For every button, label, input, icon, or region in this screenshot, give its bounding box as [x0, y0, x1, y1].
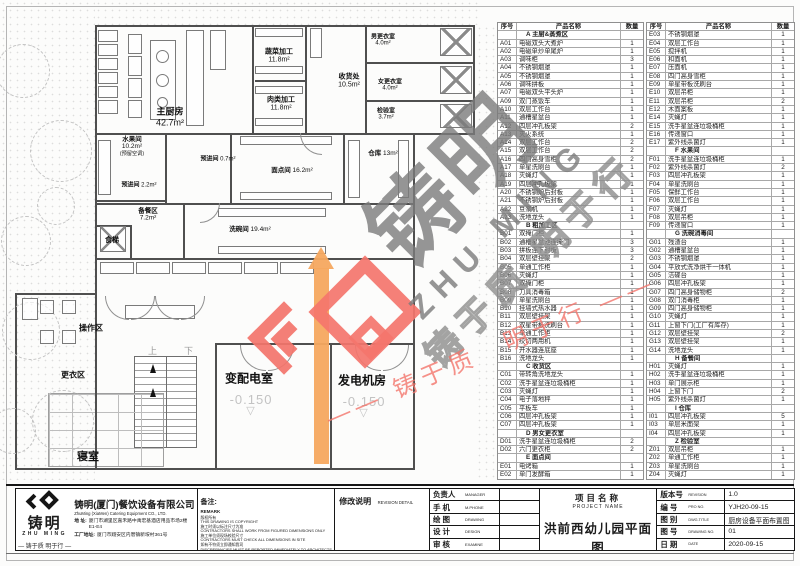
room-name: 水果间 [120, 133, 144, 143]
equipment-row: E14灭蝇灯1 [647, 114, 794, 122]
equip-name: 通槽星盆台 [517, 114, 621, 121]
equipment-row: B03拼板连下封板3 [498, 247, 643, 255]
equip-name: 压面机 [666, 64, 772, 71]
equip-name: 双掩门柜 [517, 230, 621, 237]
equipment-row: G09四门高身储物柜1 [647, 305, 794, 313]
equip-code: G08 [647, 297, 666, 304]
equip-name: 调味拼板 [517, 81, 621, 88]
signer-value [499, 489, 539, 500]
drawing-info-row: 图 号DRAWING NO.01 [657, 526, 794, 538]
equipment-row: G14洗地龙头1 [647, 347, 794, 355]
equip-qty: 1 [772, 64, 794, 71]
equip-name: 灭蝇灯 [666, 313, 772, 320]
equip-code: A12 [498, 123, 517, 130]
equip-qty: 1 [621, 388, 643, 395]
section-row: G 洗碗消毒间 [647, 230, 794, 238]
stair-direction-arrow [150, 388, 156, 397]
equip-qty: 1 [772, 114, 794, 121]
equip-qty: 1 [621, 305, 643, 312]
equip-qty: 1 [772, 89, 794, 96]
equipment-block [310, 28, 322, 58]
signer-label-zh: 负责人 [430, 489, 465, 500]
equipment-row: E09单星带板洗刷台1 [647, 81, 794, 89]
room-name: 肉类加工 [267, 95, 295, 105]
room-label: 男更衣室4.0m² [371, 32, 395, 47]
project-cell: 项目名称 PROJECT NAME 洪前西幼儿园平面图 [540, 489, 658, 550]
equip-qty: 1 [621, 172, 643, 179]
remark-line: DISCREPANCIES MUST BE REPORTED IMMEDIATE… [201, 548, 332, 550]
equip-code: B12 [498, 322, 517, 329]
equip-qty: 1 [621, 421, 643, 428]
equip-qty: 5 [772, 413, 794, 420]
section-label: A 主厨&蒸煮区 [517, 31, 621, 38]
equip-qty: 1 [621, 164, 643, 171]
equipment-row: A19四层冲孔板架1 [498, 181, 643, 189]
equipment-row: A15双层工作台2 [498, 147, 643, 155]
equip-code: E16 [647, 131, 666, 138]
equip-qty: 2 [621, 123, 643, 130]
equip-code: I01 [647, 413, 666, 420]
info-label-zh: 图 号 [657, 526, 688, 537]
equipment-block [208, 262, 242, 274]
room-name: 蔬菜加工 [265, 47, 293, 57]
section-qty [621, 430, 643, 437]
equip-name: 双层吊柜 [666, 98, 772, 105]
equipment-row: B09单星洗刷台1 [498, 297, 643, 305]
equip-qty: 1 [621, 405, 643, 412]
section-row: D 男女更衣室 [498, 430, 643, 438]
section-row: Z 检验室 [647, 438, 794, 446]
equip-qty: 1 [621, 230, 643, 237]
equip-name: 不锈钢炉后封板 [517, 197, 621, 204]
equip-qty: 2 [621, 156, 643, 163]
section-qty [772, 230, 794, 237]
equipment-block [440, 66, 472, 94]
equipment-row: F08双层吊柜1 [647, 214, 794, 222]
equipment-row: C01带转角洗地龙头1 [498, 371, 643, 379]
tree-icon [37, 187, 75, 225]
equip-code: I04 [647, 430, 666, 437]
equip-qty: 1 [772, 214, 794, 221]
floor-plan: 上 下 主厨房42.7m²蔬菜加工11.8m²肉类加工11.8m²收货处10.5… [0, 0, 497, 487]
equip-name: 灭蝇灯 [666, 363, 772, 370]
equip-code: B13 [498, 330, 517, 337]
header-name: 产品名称 [517, 23, 621, 30]
equip-code: B14 [498, 338, 517, 345]
room-label: 变配电室 [225, 370, 273, 387]
equip-name: 双层壁挂架 [666, 330, 772, 337]
drawing-info-row: 日 期DATE2020-09-15 [657, 539, 794, 550]
equip-code: G04 [647, 264, 666, 271]
equip-qty: 1 [621, 206, 643, 213]
equipment-block [210, 30, 226, 70]
equip-qty: 1 [772, 454, 794, 461]
equip-qty: 1 [772, 421, 794, 428]
equip-qty: 1 [772, 181, 794, 188]
equip-code: A16 [498, 156, 517, 163]
equip-name: 灭蝇灯 [517, 172, 621, 179]
room-name: 女更衣室 [378, 77, 402, 86]
equipment-row: I01四层冲孔板架5 [647, 413, 794, 421]
equip-name: 灭蝇灯 [517, 388, 621, 395]
equip-code: A22 [498, 206, 517, 213]
equipment-row: B10挂墙式热水器1 [498, 305, 643, 313]
equip-name: 单星洗刷台 [666, 463, 772, 470]
equipment-row: A04不锈钢烟罩1 [498, 64, 643, 72]
company-cell: 铸明 ZHU MING — 铸于质 明于行 — 铸明(厦门)餐饮设备有限公司 Z… [16, 489, 198, 550]
equip-name: 洁碟台 [666, 272, 772, 279]
equipment-row: B06灭蝇灯1 [498, 272, 643, 280]
equip-code: A19 [498, 181, 517, 188]
wall-segment [413, 133, 415, 470]
equip-name: 洗手星盆连垃圾桶柜 [666, 156, 772, 163]
equipment-block [62, 330, 76, 344]
equip-code: A14 [498, 139, 517, 146]
room-area: 13m² [381, 150, 398, 157]
section-row: I 仓库 [647, 405, 794, 413]
tree-icon [30, 120, 92, 182]
equipment-row: E17紫外线杀菌灯1 [647, 139, 794, 147]
room-name: 食梯 [105, 235, 119, 245]
equipment-row: H01灭蝇灯1 [647, 363, 794, 371]
equip-qty: 1 [621, 338, 643, 345]
room-area: 4.0m² [378, 86, 402, 92]
section-label: E 面点间 [517, 454, 621, 461]
signer-row: 负责人MANAGER [430, 489, 539, 501]
equipment-row: G11上窗下门(工厂有库存)1 [647, 322, 794, 330]
equip-qty: 1 [621, 189, 643, 196]
equip-qty: 1 [772, 255, 794, 262]
equip-code: D02 [498, 446, 517, 453]
equipment-row: G05洁碟台1 [647, 272, 794, 280]
equipment-row: F09传递窗口1 [647, 222, 794, 230]
equip-name: 双门消毒柜 [666, 297, 772, 304]
equipment-row: I04四层冲孔板架1 [647, 430, 794, 438]
equipment-block [98, 100, 118, 114]
equip-code: I03 [647, 421, 666, 428]
room-area: 11.8m² [265, 57, 293, 64]
equipment-row: F06双层工作台1 [647, 197, 794, 205]
equipment-table-left: 序号产品名称数量A 主厨&蒸煮区A01电磁双头大煮炉1A02电磁单炒单尾炉1A0… [497, 22, 644, 480]
equipment-row: A23洗地龙头1 [498, 214, 643, 222]
equip-name: 残渣台 [666, 239, 772, 246]
signer-label-zh: 手 机 [430, 502, 465, 513]
equip-code: A07 [498, 89, 517, 96]
room-label: 操作区 [79, 323, 103, 334]
equip-name: 上窗下门(工厂有库存) [666, 322, 772, 329]
equip-name: 双层工作台 [666, 197, 772, 204]
section-no [647, 147, 666, 154]
equip-code: G02 [647, 247, 666, 254]
equip-code: E05 [647, 48, 666, 55]
stair-direction-arrow [150, 364, 156, 373]
section-no [647, 438, 666, 445]
equip-name: 双星带板洗刷台 [517, 322, 621, 329]
equip-qty: 1 [772, 446, 794, 453]
equipment-row: E04双层工作台1 [647, 40, 794, 48]
equip-name: 六门更衣柜 [517, 446, 621, 453]
wall-segment [413, 133, 475, 135]
factory-label: 工厂地址: [74, 533, 95, 539]
equipment-row: Z03单星洗刷台1 [647, 463, 794, 471]
landscape-texture [95, 0, 480, 25]
section-no [647, 355, 666, 362]
wall-segment [365, 25, 367, 135]
signer-label-zh: 设 计 [430, 526, 465, 537]
equipment-row: E12木面案板1 [647, 106, 794, 114]
remark-title-en: REMARK [201, 509, 332, 515]
revision-title-zh: 修改说明 [339, 497, 371, 506]
project-header: 项目名称 PROJECT NAME [540, 492, 657, 510]
equip-qty: 1 [621, 297, 643, 304]
equip-qty: 1 [772, 363, 794, 370]
signer-row: 审 核EXAMINE [430, 539, 539, 550]
equip-qty: 3 [621, 247, 643, 254]
equipment-block [40, 300, 54, 314]
equip-code: H03 [647, 380, 666, 387]
equip-code: B06 [498, 272, 517, 279]
equip-qty: 2 [772, 289, 794, 296]
signers-cell: 负责人MANAGER手 机M.PHONE绘 图DRAWING设 计DESIGN审… [430, 489, 540, 550]
company-name-en: ZhuMing (XiaMen) Catering Equipment CO.,… [74, 511, 194, 517]
equip-name: 四门高身雪柜 [517, 156, 621, 163]
equipment-block [136, 262, 170, 274]
drawing-info-row: 版本号REVISION1.0 [657, 489, 794, 501]
factory-value: 厦门市翔安区内厝镇新垵村361号 [97, 533, 167, 539]
equip-qty: 1 [772, 222, 794, 229]
section-qty [621, 363, 643, 370]
equip-code: H05 [647, 396, 666, 403]
equip-qty: 1 [621, 347, 643, 354]
equipment-block [255, 118, 303, 126]
equipment-row: E03不锈钢烟罩1 [647, 31, 794, 39]
room-label: 寝室 [77, 448, 99, 464]
equip-qty: 2 [772, 330, 794, 337]
equip-code: A05 [498, 73, 517, 80]
section-row: C 收货区 [498, 363, 643, 371]
equip-code: E07 [647, 64, 666, 71]
room-area: 10.5m² [338, 82, 360, 89]
equip-name: 洗手星盆连垃圾桶柜 [666, 371, 772, 378]
titleblock-bottomline [6, 553, 794, 554]
equipment-row: A03调味柜3 [498, 56, 643, 64]
equip-qty: 2 [772, 388, 794, 395]
signer-value [499, 501, 539, 512]
table-header-row: 序号产品名称数量 [498, 23, 643, 31]
room-label: 面点间 16.2m² [271, 164, 313, 174]
equip-qty: 1 [621, 463, 643, 470]
equip-code: B05 [498, 264, 517, 271]
equip-name: 四层冲孔板架 [517, 421, 621, 428]
equip-qty: 1 [772, 471, 794, 479]
section-row: E 面点间 [498, 454, 643, 462]
equip-qty: 1 [772, 239, 794, 246]
equip-code: E03 [647, 31, 666, 38]
equipment-block [218, 208, 326, 217]
equip-name: 双层吊柜 [666, 446, 772, 453]
equipment-block [100, 262, 134, 274]
section-label: G 洗碗消毒间 [666, 230, 772, 237]
equip-name: 平板车 [517, 405, 621, 412]
equip-code: F01 [647, 156, 666, 163]
section-qty [772, 405, 794, 412]
equipment-row: G01残渣台1 [647, 239, 794, 247]
revision-title-en: REVISION DETAIL [378, 500, 414, 505]
room-area: 42.7m² [156, 118, 184, 128]
header-name: 产品名称 [666, 23, 772, 30]
section-no [498, 430, 517, 437]
equipment-row: C07四层冲孔板架1 [498, 421, 643, 429]
equip-code: D01 [498, 438, 517, 445]
equip-name: 四层冲孔板架 [666, 430, 772, 437]
signer-row: 手 机M.PHONE [430, 501, 539, 513]
equip-name: 紫外线杀菌灯 [666, 396, 772, 403]
room-name: 面点间 [271, 167, 291, 174]
equipment-row: A20不锈钢炉后封板1 [498, 189, 643, 197]
door-swing-arc [355, 345, 381, 371]
equip-qty: 1 [772, 338, 794, 345]
equipment-row: A09双门蒸饭车1 [498, 98, 643, 106]
equip-code: G01 [647, 239, 666, 246]
stair-down-label: 下 [184, 344, 193, 357]
equipment-row: E16传递窗口1 [647, 131, 794, 139]
equip-qty: 1 [621, 131, 643, 138]
equipment-table-right: 序号产品名称数量E03不锈钢烟罩1E04双层工作台1E05搅拌机1E06和面机1… [646, 22, 795, 480]
equip-code: B07 [498, 280, 517, 287]
equipment-block [244, 262, 278, 274]
equip-name: 单星洗刷台 [517, 297, 621, 304]
room-area: 0.7m² [219, 157, 236, 163]
equip-qty: 1 [772, 48, 794, 55]
equip-name: 双层吊柜 [666, 89, 772, 96]
equip-qty: 1 [772, 31, 794, 38]
equip-qty: 1 [772, 280, 794, 287]
remark-title-zh: 备注: [201, 499, 217, 506]
equipment-row: Z02单通工作柜1 [647, 454, 794, 462]
equipment-row: E08四门高身雪柜1 [647, 73, 794, 81]
equip-code: Z02 [647, 454, 666, 461]
equip-name: 紫外线杀菌灯 [666, 139, 772, 146]
equipment-row: F02紫外线杀菌灯2 [647, 164, 794, 172]
equip-code: F03 [647, 172, 666, 179]
wall-segment [252, 25, 254, 135]
equip-code: E02 [498, 471, 517, 479]
equip-qty: 1 [772, 371, 794, 378]
equip-name: 不锈钢烟罩 [517, 64, 621, 71]
section-no [498, 454, 517, 461]
equipment-row: B02通槽星盆池连掩门3 [498, 239, 643, 247]
equip-name: 平放式洗净烘干一体机 [666, 264, 772, 271]
equip-qty: 1 [772, 313, 794, 320]
equip-qty: 1 [772, 396, 794, 403]
equipment-block [156, 74, 169, 87]
equipment-row: F05保鲜工作台1 [647, 189, 794, 197]
equip-name: 电子落地秤 [517, 396, 621, 403]
equipment-row: A01电磁双头大煮炉1 [498, 40, 643, 48]
equip-name: 双层工作台 [517, 139, 621, 146]
section-label: Z 检验室 [666, 438, 772, 445]
equip-name: 传递窗口 [666, 131, 772, 138]
equip-code: E17 [647, 139, 666, 146]
info-label-en: DWG.TITLE [688, 518, 724, 522]
equip-qty: 1 [772, 131, 794, 138]
equipment-row: E05搅拌机1 [647, 48, 794, 56]
info-label-en: REVISION [688, 493, 724, 497]
signer-label-en: DESIGN [465, 529, 499, 534]
equip-name: 电磁单炒单尾炉 [517, 48, 621, 55]
info-value: YJH20-09-15 [724, 501, 794, 512]
equip-code: A21 [498, 197, 517, 204]
equip-code: G03 [647, 255, 666, 262]
equip-name: 和面机 [666, 56, 772, 63]
equip-code: F05 [647, 189, 666, 196]
room-name: 收货处 [338, 72, 360, 82]
equipment-row: F07灭蝇灯1 [647, 206, 794, 214]
equipment-row: A05不锈钢烟罩1 [498, 73, 643, 81]
room-label: 水果间10.2m²(预留空调) [120, 133, 144, 157]
equip-name: 双掩门柜 [517, 280, 621, 287]
equipment-row: E15洗手星盆连垃圾桶柜1 [647, 123, 794, 131]
equip-qty: 1 [621, 322, 643, 329]
signer-row: 绘 图DRAWING [430, 514, 539, 526]
equip-qty: 1 [621, 264, 643, 271]
info-label-zh: 图 别 [657, 514, 688, 525]
wall-segment [343, 133, 345, 203]
equip-qty: 1 [772, 272, 794, 279]
equip-qty: 1 [621, 330, 643, 337]
equip-qty: 1 [621, 106, 643, 113]
equip-qty: 1 [621, 40, 643, 47]
equipment-row: A16四门高身雪柜2 [498, 156, 643, 164]
company-logo: 铸明 ZHU MING — 铸于质 明于行 — [18, 490, 71, 550]
door-swing-arc [105, 296, 129, 320]
equipment-block [40, 330, 54, 344]
room-area: 2.2m² [140, 183, 157, 189]
equipment-block [156, 50, 169, 63]
equipment-row: G04平放式洗净烘干一体机1 [647, 264, 794, 272]
signer-row: 设 计DESIGN [430, 526, 539, 538]
room-name: 发电机房 [338, 372, 386, 389]
equip-name: 单层米面架 [666, 421, 772, 428]
room-label: 洗碗间 19.4m² [229, 223, 271, 233]
remark-lines: 版权所有THIS DRAWING IS COPYRIGHT施工时须以标注尺寸为准… [201, 516, 332, 551]
equipment-row: F03四层冲孔板架1 [647, 172, 794, 180]
equip-qty: 2 [621, 438, 643, 445]
equip-code: B15 [498, 347, 517, 354]
equip-code: A10 [498, 106, 517, 113]
equip-code: Z01 [647, 446, 666, 453]
elevation-marker: -0.150▽ [230, 392, 273, 415]
equip-name: 带转角洗地龙头 [517, 371, 621, 378]
equip-qty: 1 [772, 347, 794, 354]
logo-tagline: — 铸于质 明于行 — [18, 541, 71, 550]
equipment-row: H04上窗下门2 [647, 388, 794, 396]
equip-code: G13 [647, 338, 666, 345]
elevation-triangle-icon: ▽ [230, 407, 273, 415]
equip-name: 不锈钢烟罩 [666, 255, 772, 262]
room-area: 3.7m² [377, 115, 395, 121]
equip-code: F04 [647, 181, 666, 188]
signer-value [499, 539, 539, 550]
equipment-row: E10双层吊柜1 [647, 89, 794, 97]
equip-code: A11 [498, 114, 517, 121]
equip-name: 木面案板 [666, 106, 772, 113]
equip-code: G10 [647, 313, 666, 320]
table-header-row: 序号产品名称数量 [647, 23, 794, 31]
signer-label-zh: 绘 图 [430, 514, 465, 525]
equip-qty: 1 [772, 197, 794, 204]
equip-qty: 1 [621, 114, 643, 121]
